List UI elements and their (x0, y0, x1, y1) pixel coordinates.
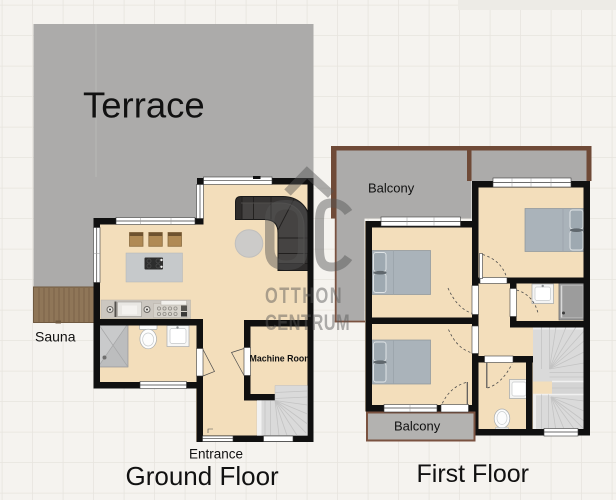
svg-text:Balcony: Balcony (368, 181, 415, 196)
svg-text:Entrance: Entrance (189, 447, 243, 462)
svg-text:First Floor: First Floor (417, 460, 530, 488)
svg-text:CENTRUM: CENTRUM (265, 311, 350, 336)
svg-text:Sauna: Sauna (35, 329, 76, 345)
svg-text:OTTHON: OTTHON (265, 284, 343, 309)
svg-text:Ground Floor: Ground Floor (126, 461, 280, 491)
svg-text:Machine Room: Machine Room (250, 354, 313, 364)
svg-text:Terrace: Terrace (83, 85, 205, 126)
svg-text:Balcony: Balcony (394, 419, 441, 434)
